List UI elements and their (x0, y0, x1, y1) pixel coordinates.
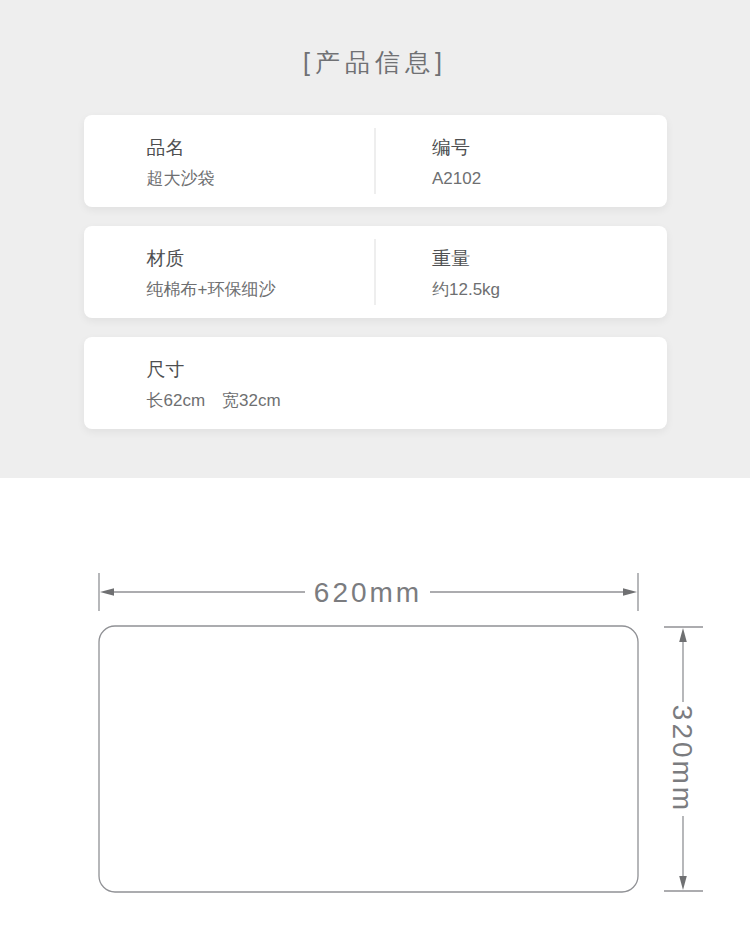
info-card-list: 品名 超大沙袋 编号 A2102 材质 纯棉布+环保细沙 重量 约12. (84, 115, 667, 429)
product-info-section: [产品信息] 品名 超大沙袋 编号 A2102 材质 纯棉布+环保细沙 (0, 0, 750, 478)
info-card-material-weight: 材质 纯棉布+环保细沙 重量 约12.5kg (84, 226, 667, 318)
info-card-dimensions: 尺寸 长62cm 宽32cm (84, 337, 667, 429)
arrowhead-down-icon (679, 876, 687, 890)
field-product-code: 编号 A2102 (375, 115, 667, 207)
arrowhead-up-icon (679, 628, 687, 642)
sandbag-outline (99, 626, 638, 892)
field-product-name: 品名 超大沙袋 (84, 115, 376, 207)
arrowhead-right-icon (623, 588, 637, 596)
height-dimension-label: 320mm (667, 705, 698, 813)
field-dimensions: 尺寸 长62cm 宽32cm (84, 337, 667, 429)
card-divider (375, 128, 376, 194)
sandbag-dimension-diagram: 620mm 320mm (0, 478, 750, 948)
field-label: 重量 (432, 248, 667, 271)
field-value: 长62cm 宽32cm (147, 391, 667, 411)
arrowhead-left-icon (100, 588, 114, 596)
dimension-diagram-section: 620mm 320mm (0, 478, 750, 948)
field-label: 品名 (147, 137, 376, 160)
field-material: 材质 纯棉布+环保细沙 (84, 226, 376, 318)
field-label: 材质 (147, 248, 376, 271)
field-value: 超大沙袋 (147, 169, 376, 189)
info-card-name-code: 品名 超大沙袋 编号 A2102 (84, 115, 667, 207)
field-value: 约12.5kg (432, 280, 667, 300)
field-weight: 重量 约12.5kg (375, 226, 667, 318)
field-label: 尺寸 (147, 359, 667, 382)
field-label: 编号 (432, 137, 667, 160)
field-value: 纯棉布+环保细沙 (147, 280, 376, 300)
product-detail-page: [产品信息] 品名 超大沙袋 编号 A2102 材质 纯棉布+环保细沙 (0, 0, 750, 948)
page-title: [产品信息] (0, 46, 750, 79)
field-value: A2102 (432, 169, 667, 189)
card-divider (375, 239, 376, 305)
width-dimension-label: 620mm (314, 577, 422, 608)
